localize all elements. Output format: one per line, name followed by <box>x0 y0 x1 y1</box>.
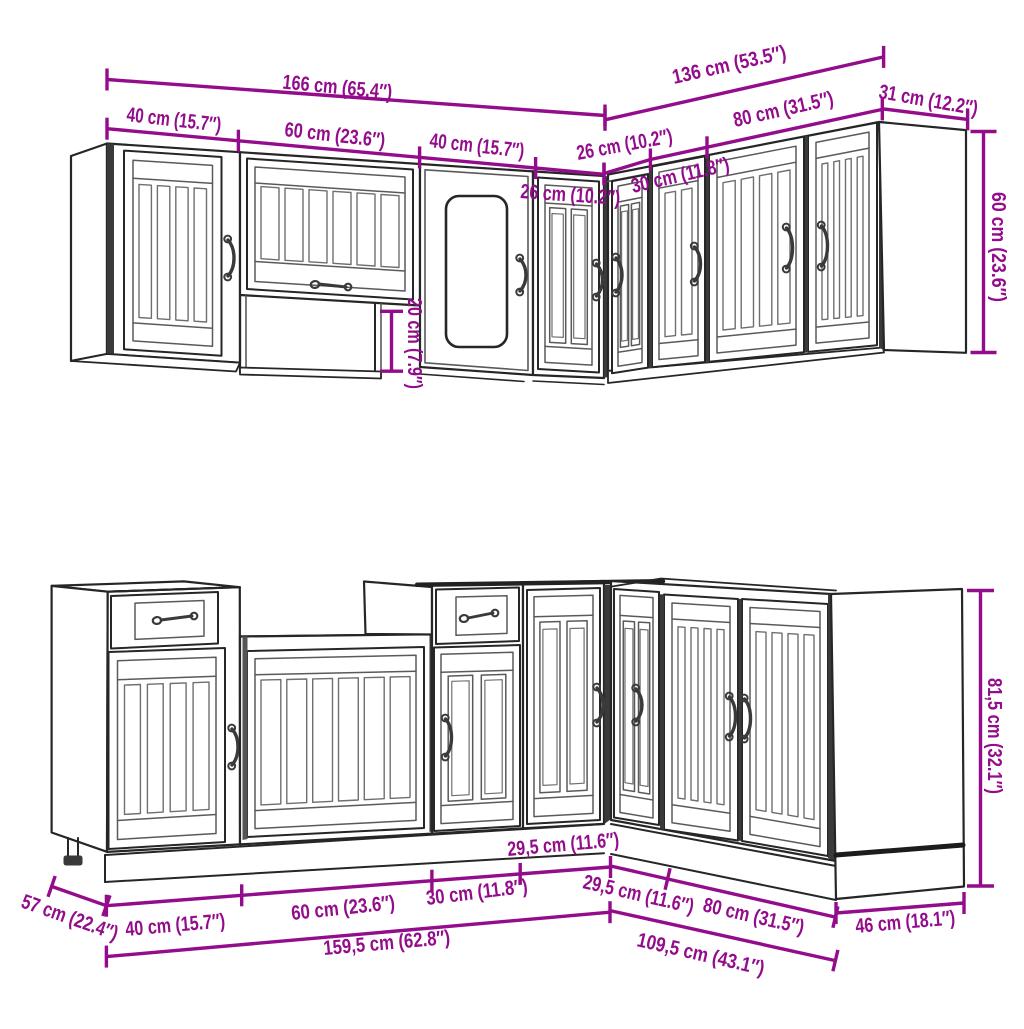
svg-text:60 cm (23.6″): 60 cm (23.6″) <box>987 192 1010 302</box>
svg-text:20 cm (7.9″): 20 cm (7.9″) <box>403 298 426 389</box>
svg-text:81,5 cm (32.1″): 81,5 cm (32.1″) <box>983 678 1006 794</box>
